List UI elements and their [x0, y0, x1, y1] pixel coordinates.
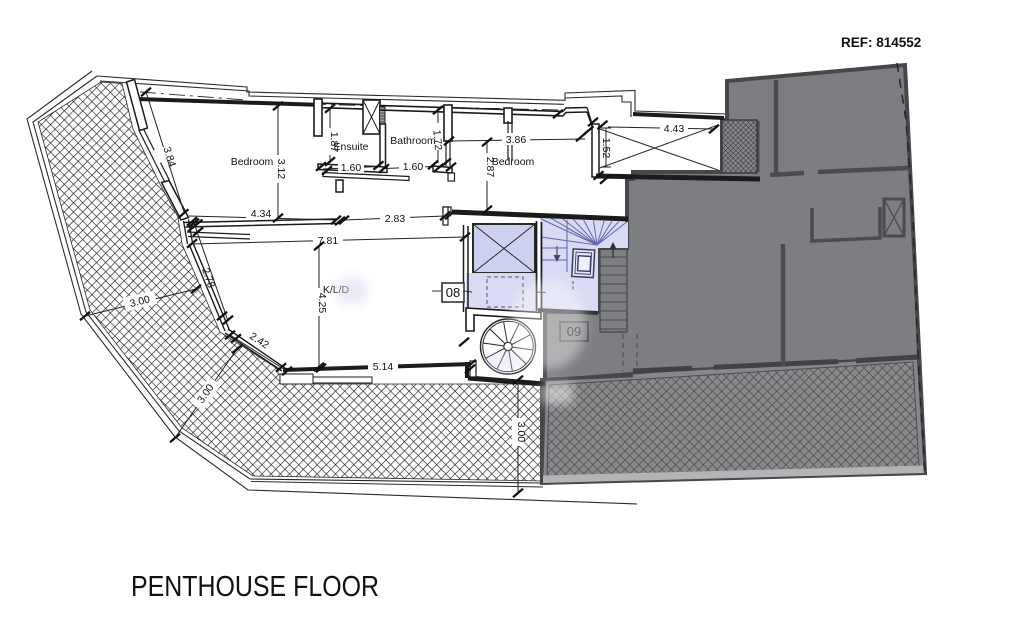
svg-text:4.43: 4.43: [664, 123, 685, 135]
svg-text:4.34: 4.34: [251, 208, 272, 220]
svg-text:REF: 814552: REF: 814552: [841, 35, 921, 50]
svg-text:PENTHOUSE FLOOR: PENTHOUSE FLOOR: [131, 571, 379, 603]
svg-text:1.52: 1.52: [600, 138, 612, 159]
svg-text:Ensuite: Ensuite: [333, 141, 368, 153]
svg-text:Bathroom: Bathroom: [390, 135, 436, 147]
svg-text:1.60: 1.60: [403, 161, 424, 173]
svg-text:1.60: 1.60: [341, 162, 362, 174]
svg-text:08: 08: [446, 285, 460, 300]
svg-text:3.86: 3.86: [506, 134, 527, 146]
svg-text:Bedroom: Bedroom: [492, 156, 535, 168]
svg-text:5.14: 5.14: [373, 361, 394, 373]
svg-text:3.12: 3.12: [275, 159, 287, 180]
svg-text:Bedroom: Bedroom: [231, 156, 274, 168]
svg-text:2.78: 2.78: [199, 266, 217, 289]
svg-text:3.00: 3.00: [515, 422, 527, 443]
svg-text:2.83: 2.83: [385, 213, 406, 225]
